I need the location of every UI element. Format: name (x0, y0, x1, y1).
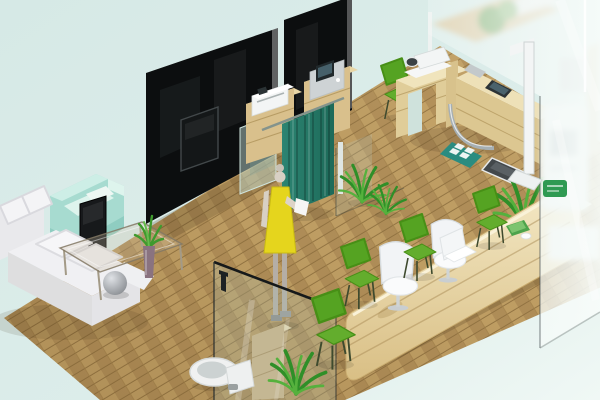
mouse (521, 233, 531, 239)
door-handle (221, 274, 226, 292)
toilet (190, 358, 254, 394)
door-frame-bar (338, 142, 343, 194)
wall-sign (543, 180, 567, 197)
isometric-clinic-render (0, 0, 600, 400)
head (275, 172, 286, 183)
hair-bun (276, 164, 284, 172)
scene-canvas (0, 0, 600, 400)
